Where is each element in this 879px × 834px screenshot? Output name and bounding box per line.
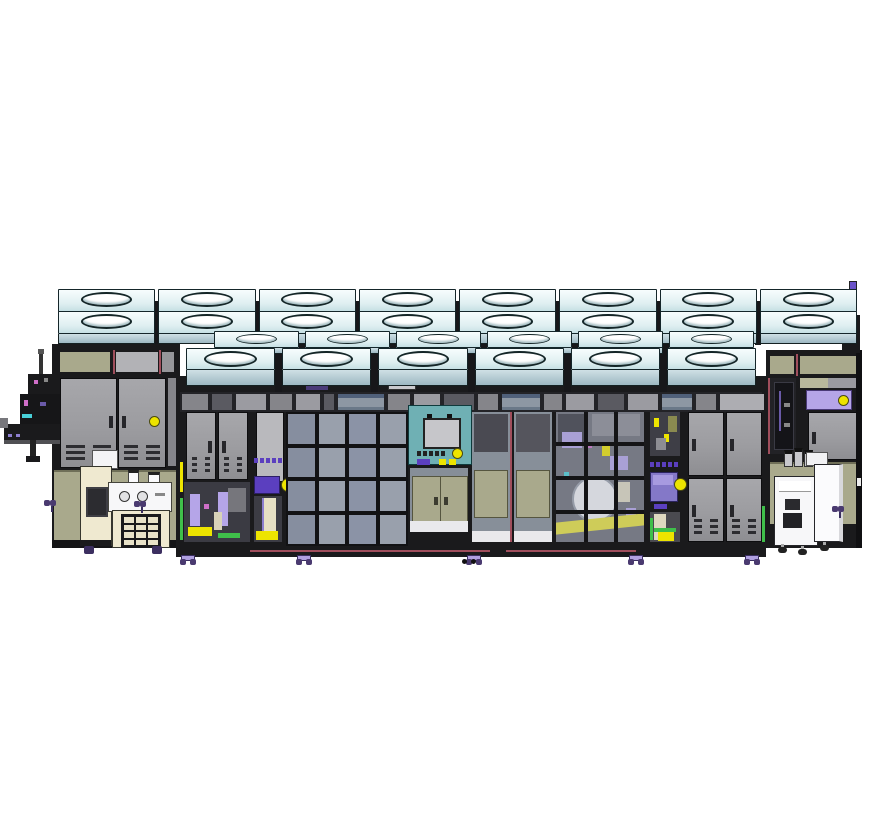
- cart-caster: [152, 546, 162, 554]
- frame-latch: [857, 478, 861, 486]
- fan-oval-icon: [582, 314, 634, 329]
- fitting: [784, 450, 793, 467]
- clerestory-window: [162, 352, 174, 372]
- fan-oval-icon: [509, 334, 549, 344]
- cart-caster: [778, 544, 787, 553]
- clerestory-window: [628, 394, 658, 410]
- fan-oval-icon: [600, 334, 640, 344]
- fan-oval-icon: [418, 334, 458, 344]
- cabinet-door: [726, 478, 762, 542]
- robot-block: [28, 374, 58, 394]
- process-window: [254, 496, 282, 542]
- push-button: [266, 458, 270, 463]
- ffu-unit: [571, 348, 660, 386]
- internal-equipment: [474, 414, 508, 452]
- push-button: [429, 451, 433, 456]
- ffu-top-face: [559, 289, 656, 312]
- door-handle: [692, 439, 696, 451]
- fan-oval-icon: [81, 292, 133, 307]
- ffu-top-face: [305, 331, 390, 348]
- ffu-front-face: [667, 370, 756, 386]
- clerestory-window: [182, 394, 208, 410]
- fan-oval-icon: [783, 292, 835, 307]
- chiller-vent: [783, 513, 802, 528]
- fan-oval-icon: [236, 334, 276, 344]
- accent-line: [510, 412, 512, 542]
- accent-line: [768, 378, 770, 454]
- clerestory-window: [212, 394, 232, 410]
- accent-line: [250, 550, 490, 552]
- fan-oval-icon: [281, 314, 333, 329]
- floor-strip: [472, 531, 510, 542]
- chiller-column: [814, 464, 843, 542]
- ffu-unit: [667, 348, 756, 386]
- status-light: [149, 416, 160, 427]
- clerestory-window: [828, 378, 856, 388]
- push-button: [662, 462, 666, 467]
- push-button: [260, 458, 264, 463]
- process-window: [650, 412, 680, 456]
- clerestory-window: [338, 394, 384, 410]
- cabinet-handle: [434, 497, 438, 505]
- ffu-top-face: [58, 289, 155, 312]
- fan-oval-icon: [181, 292, 233, 307]
- frame-accent: [180, 498, 183, 540]
- ffu-front-face: [378, 370, 467, 386]
- push-button: [417, 451, 421, 456]
- keypad-key: [136, 532, 146, 538]
- ffu-top-face: [487, 331, 572, 348]
- keypad-key: [136, 540, 146, 546]
- robot-led: [16, 434, 20, 437]
- robot-led: [44, 378, 48, 382]
- chiller-vent: [785, 499, 800, 510]
- process-window: [650, 512, 680, 542]
- accent-line: [159, 350, 161, 374]
- internal-equipment: [214, 512, 222, 530]
- ffu-unit: [760, 289, 857, 344]
- glass-pane: [288, 515, 315, 545]
- fan-oval-icon: [397, 351, 450, 367]
- keypad-key: [124, 525, 134, 531]
- door-handle: [222, 441, 226, 453]
- internal-cabinet: [516, 470, 550, 518]
- keypad: [121, 514, 161, 548]
- electronics-rack: [774, 382, 794, 450]
- glass-pane: [380, 448, 407, 478]
- internal-equipment: [218, 533, 240, 538]
- fan-oval-icon: [327, 334, 367, 344]
- leveling-foot: [462, 559, 467, 564]
- fan-oval-icon: [682, 314, 734, 329]
- fan-oval-icon: [382, 314, 434, 329]
- keypad-key: [148, 517, 158, 523]
- ffu-unit: [58, 289, 155, 344]
- ffu-top-face: [760, 289, 857, 312]
- internal-equipment: [658, 532, 674, 541]
- robot-mast: [39, 352, 43, 376]
- door-vents: [224, 457, 242, 473]
- status-light: [452, 448, 463, 459]
- status-light: [674, 478, 687, 491]
- internal-equipment: [656, 438, 666, 450]
- fan-oval-icon: [204, 351, 257, 367]
- cabinet-door: [218, 412, 248, 480]
- ffu-top-face: [214, 331, 299, 348]
- fan-oval-icon: [582, 292, 634, 307]
- floor-strip: [514, 531, 552, 542]
- push-button: [656, 462, 660, 467]
- door-handle: [109, 416, 113, 428]
- internal-equipment: [190, 494, 200, 526]
- key-switch: [654, 504, 667, 509]
- internal-equipment: [516, 414, 550, 452]
- ffu-top-face: [475, 348, 564, 370]
- ffu-front-face: [475, 370, 564, 386]
- robot-mast-tip: [38, 349, 44, 354]
- push-button: [423, 451, 427, 456]
- fan-oval-icon: [493, 351, 546, 367]
- glass-pane: [288, 414, 315, 444]
- clerestory-panel: [60, 352, 110, 372]
- glass-pane: [349, 515, 376, 545]
- door-handle: [730, 439, 734, 451]
- keypad-key: [124, 532, 134, 538]
- ffu-front-face: [282, 370, 371, 386]
- cart-caster: [820, 542, 829, 551]
- clerestory-window: [544, 394, 562, 410]
- ffu-top-face: [760, 311, 857, 334]
- clerestory-window: [662, 394, 692, 410]
- ffu-front-face: [186, 370, 275, 386]
- chiller-drawer: [779, 481, 811, 492]
- ffu-unit: [475, 348, 564, 386]
- door-vents: [192, 457, 210, 473]
- internal-cabinet: [412, 476, 468, 524]
- machine-casters: [0, 555, 879, 567]
- cart-caster: [84, 546, 94, 554]
- window-grid-left: [286, 412, 408, 546]
- frame-accent: [180, 462, 183, 492]
- robot-led: [24, 400, 28, 406]
- ffu-front-face: [58, 334, 155, 344]
- clerestory-panel: [770, 356, 794, 374]
- push-button: [278, 458, 282, 463]
- door-vents: [732, 519, 756, 535]
- fan-oval-icon: [682, 292, 734, 307]
- frame-column: [856, 350, 862, 548]
- caster: [296, 555, 312, 565]
- clerestory-window: [388, 394, 410, 410]
- internal-equipment: [228, 488, 246, 512]
- key-switch: [439, 459, 446, 465]
- window-mullion: [556, 510, 644, 514]
- glass-pane: [349, 481, 376, 511]
- main-bay: [176, 376, 766, 557]
- process-window: [472, 412, 510, 542]
- window-mullion: [556, 476, 644, 480]
- clerestory-window: [696, 394, 716, 410]
- ffu-top-face: [669, 331, 754, 348]
- fan-oval-icon: [281, 292, 333, 307]
- fan-oval-icon: [482, 292, 534, 307]
- ffu-top-face: [571, 348, 660, 370]
- ffu-top-face: [378, 348, 467, 370]
- screen-hinge: [427, 414, 432, 418]
- ffu-top-face: [459, 289, 556, 312]
- keypad-key: [136, 525, 146, 531]
- side-panel: [168, 378, 176, 466]
- robot-led: [40, 402, 46, 406]
- keypad-key: [148, 540, 158, 546]
- glass-pane: [288, 448, 315, 478]
- push-button: [254, 458, 258, 463]
- door-vents: [694, 519, 718, 535]
- accent-line: [113, 350, 115, 374]
- screen-hinge: [447, 414, 452, 418]
- cabinet-door: [726, 412, 762, 476]
- cabinet-handle: [444, 497, 448, 505]
- glass-pane: [319, 515, 346, 545]
- door-handle: [812, 432, 816, 444]
- sub-panel-screen: [653, 475, 673, 485]
- robot-led: [8, 434, 12, 437]
- ffu-top-face: [667, 348, 756, 370]
- glass-pane: [349, 448, 376, 478]
- keypad-key: [124, 517, 134, 523]
- fan-oval-icon: [382, 292, 434, 307]
- fan-oval-icon: [685, 351, 738, 367]
- cabinet-seam: [440, 477, 441, 523]
- ffu-unit: [282, 348, 371, 386]
- rack-bay: [770, 378, 796, 454]
- process-window: [184, 482, 250, 542]
- cabinet-door: [688, 412, 724, 476]
- process-window: [410, 468, 468, 532]
- clerestory-panel: [800, 356, 856, 374]
- fan-oval-icon: [181, 314, 233, 329]
- button-row: [650, 462, 678, 467]
- button-row: [417, 451, 445, 456]
- push-button: [441, 451, 445, 456]
- internal-cabinet: [474, 470, 508, 518]
- glass-pane: [380, 414, 407, 444]
- equipment-line-render: [0, 0, 879, 834]
- rack-module: [784, 403, 790, 407]
- cabinet-door: [688, 478, 724, 542]
- internal-equipment: [654, 418, 659, 427]
- cart-console: [108, 482, 172, 512]
- caster: [744, 555, 760, 565]
- ffu-top-face: [660, 289, 757, 312]
- window-grid-right: [556, 412, 644, 542]
- leveling-foot: [471, 559, 476, 564]
- glass-pane: [380, 515, 407, 545]
- door-handle: [730, 505, 734, 517]
- cabinet-door: [186, 412, 216, 480]
- push-button: [435, 451, 439, 456]
- ffu-top-face: [259, 289, 356, 312]
- fan-oval-icon: [783, 314, 835, 329]
- clerestory-window: [116, 352, 158, 372]
- internal-equipment: [204, 504, 209, 509]
- frame-accent: [762, 506, 765, 542]
- window-mullion: [556, 442, 644, 446]
- robot-led: [22, 414, 32, 418]
- accent-line: [796, 354, 798, 376]
- clerestory-window: [324, 394, 334, 410]
- robot-bracket: [0, 418, 8, 428]
- internal-equipment: [650, 518, 653, 540]
- status-light: [838, 395, 849, 406]
- ffu-top-face: [186, 348, 275, 370]
- key-switch: [417, 459, 430, 465]
- rack-led: [779, 391, 781, 431]
- robot-foot: [26, 456, 40, 462]
- clerestory-window: [598, 394, 624, 410]
- keypad-key: [148, 525, 158, 531]
- internal-equipment: [668, 416, 677, 432]
- keypad-key: [148, 532, 158, 538]
- fan-oval-icon: [482, 314, 534, 329]
- caster: [180, 555, 196, 565]
- chiller-body: [774, 476, 818, 546]
- fitting: [794, 448, 803, 467]
- accent-line: [506, 550, 636, 552]
- internal-equipment: [256, 531, 278, 540]
- ffu-top-face: [396, 331, 481, 348]
- console-knob: [119, 491, 130, 502]
- glass-pane: [288, 481, 315, 511]
- glass-pane: [319, 414, 346, 444]
- glass-pane: [319, 481, 346, 511]
- clerestory-window: [720, 394, 764, 410]
- operator-panel: [408, 405, 472, 465]
- glass-pane: [319, 448, 346, 478]
- fan-oval-icon: [589, 351, 642, 367]
- clerestory-window: [502, 394, 540, 410]
- keypad-key: [124, 540, 134, 546]
- ffu-top-face: [359, 289, 456, 312]
- clerestory-window: [236, 394, 266, 410]
- door-handle: [692, 505, 696, 517]
- ffu-top-face: [578, 331, 663, 348]
- fan-oval-icon: [691, 334, 731, 344]
- glass-pane: [380, 481, 407, 511]
- clerestory-window: [566, 394, 594, 410]
- door-handle: [122, 416, 126, 428]
- clerestory-window: [270, 394, 292, 410]
- cart-front: [112, 510, 170, 548]
- ffu-front-face: [760, 334, 857, 344]
- process-window: [514, 412, 552, 542]
- glass-pane: [349, 414, 376, 444]
- ffu-top-face: [58, 311, 155, 334]
- caster: [628, 555, 644, 565]
- ffu-front-face: [571, 370, 660, 386]
- cart-caster: [798, 546, 807, 555]
- robot-led: [34, 380, 38, 384]
- control-screen: [423, 418, 461, 449]
- clerestory-window: [478, 394, 498, 410]
- button-row: [254, 458, 282, 463]
- console-slot: [155, 493, 165, 496]
- push-button: [668, 462, 672, 467]
- blank-panel: [256, 412, 284, 482]
- ffu-top-face: [282, 348, 371, 370]
- robot-block: [20, 394, 60, 424]
- push-button: [650, 462, 654, 467]
- interlock-panel: [254, 476, 280, 494]
- rack-module: [784, 423, 790, 427]
- door-handle: [208, 441, 212, 453]
- keypad-key: [136, 517, 146, 523]
- floor-strip: [410, 521, 468, 532]
- clerestory-window: [296, 394, 320, 410]
- key-switch: [449, 459, 456, 465]
- ffu-unit: [186, 348, 275, 386]
- door-vents: [124, 445, 160, 461]
- push-button: [674, 462, 678, 467]
- ffu-unit: [378, 348, 467, 386]
- fan-oval-icon: [300, 351, 353, 367]
- internal-equipment: [188, 527, 212, 536]
- ffu-top-face: [158, 289, 255, 312]
- cart-display: [86, 487, 108, 517]
- push-button: [272, 458, 276, 463]
- fan-oval-icon: [81, 314, 133, 329]
